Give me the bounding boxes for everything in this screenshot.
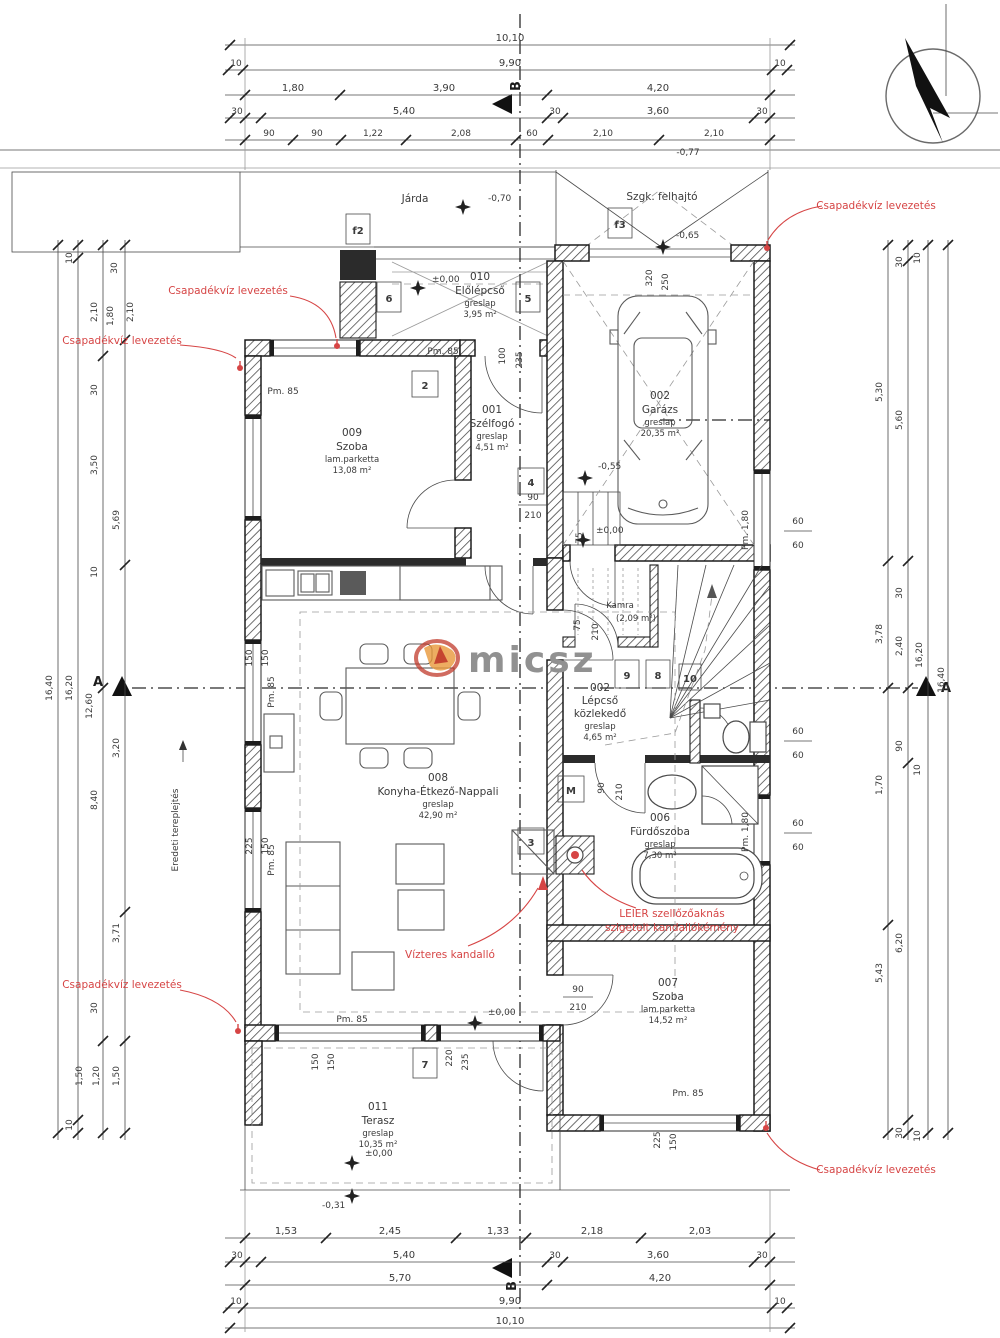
svg-text:320: 320 xyxy=(645,269,655,286)
svg-text:M: M xyxy=(566,786,576,797)
dim: 60 xyxy=(526,129,538,139)
svg-text:150: 150 xyxy=(311,1053,321,1070)
dim: 3,60 xyxy=(647,106,669,117)
floor-plan-page: B B A A xyxy=(0,0,1000,1338)
svg-text:(2,09 m²): (2,09 m²) xyxy=(616,614,656,624)
svg-text:5: 5 xyxy=(525,294,532,305)
svg-text:235: 235 xyxy=(515,351,525,368)
svg-text:2: 2 xyxy=(422,381,429,392)
dim: 30 xyxy=(110,262,120,274)
dim: 1,33 xyxy=(487,1226,509,1237)
dim: 5,69 xyxy=(112,510,122,530)
svg-text:Pm. 85: Pm. 85 xyxy=(267,844,277,875)
svg-text:3,95 m²: 3,95 m² xyxy=(463,310,496,320)
dim: 10 xyxy=(913,1130,923,1142)
svg-text:100: 100 xyxy=(498,347,508,364)
svg-text:4,51 m²: 4,51 m² xyxy=(475,443,508,453)
dim: 30 xyxy=(231,1251,243,1261)
svg-text:60: 60 xyxy=(792,843,804,853)
dim: 12,60 xyxy=(85,693,95,719)
dim: 2,10 xyxy=(126,302,136,322)
window-living-south xyxy=(275,1025,425,1041)
svg-text:Szoba: Szoba xyxy=(336,441,368,453)
note-vizteres: Vízteres kandalló xyxy=(405,949,495,961)
svg-text:Pm. 85: Pm. 85 xyxy=(267,676,277,707)
entry-porch-steps xyxy=(340,247,557,338)
svg-text:Garázs: Garázs xyxy=(642,404,678,416)
svg-text:150: 150 xyxy=(245,649,255,666)
door-dim-007: 90 210 xyxy=(563,985,593,1013)
svg-text:-0,70: -0,70 xyxy=(488,194,512,204)
svg-text:60: 60 xyxy=(792,727,804,737)
garage-steps xyxy=(563,492,620,545)
note-csapadek-top-right: Csapadékvíz levezetés xyxy=(816,200,936,212)
svg-text:±0,00: ±0,00 xyxy=(365,1149,393,1159)
svg-text:Pm. 85: Pm. 85 xyxy=(672,1089,703,1099)
dim: 10 xyxy=(65,1119,75,1131)
svg-text:210: 210 xyxy=(615,783,625,800)
svg-text:Előlépcső: Előlépcső xyxy=(455,285,505,297)
dim: 10 xyxy=(774,1297,786,1307)
svg-text:009: 009 xyxy=(342,427,362,439)
dim: 9,90 xyxy=(499,58,521,69)
dim: 3,20 xyxy=(112,738,122,758)
svg-text:6: 6 xyxy=(386,294,393,305)
svg-text:008: 008 xyxy=(428,772,448,784)
watermark-text: micsz xyxy=(468,640,597,681)
svg-text:Szoba: Szoba xyxy=(652,991,684,1003)
dim: 1,50 xyxy=(75,1066,85,1086)
dim: 8,40 xyxy=(90,790,100,810)
dim: 5,30 xyxy=(875,382,885,402)
dim: 10 xyxy=(230,1297,242,1307)
window-left-3 xyxy=(245,808,261,912)
dim: 5,43 xyxy=(875,963,885,983)
chimney xyxy=(556,836,594,874)
floor-plan-canvas: B B A A xyxy=(0,0,1000,1338)
room-label-011: 011 Terasz greslap 10,35 m² xyxy=(359,1101,398,1150)
dim: 10 xyxy=(913,252,923,264)
dim: 3,78 xyxy=(875,624,885,644)
dim: 1,22 xyxy=(363,129,383,139)
svg-text:42,90 m²: 42,90 m² xyxy=(419,811,458,821)
dim: 30 xyxy=(756,107,768,117)
section-label-a-left: A xyxy=(93,675,103,690)
dim: 1,80 xyxy=(106,306,116,326)
svg-text:Fürdőszoba: Fürdőszoba xyxy=(630,826,690,838)
note-leier-1: LEIER szellőzőaknás xyxy=(619,908,725,920)
svg-text:Pm. 85: Pm. 85 xyxy=(427,347,458,357)
dim: 5,70 xyxy=(389,1273,411,1284)
dim: 1,50 xyxy=(112,1066,122,1086)
svg-text:-0,65: -0,65 xyxy=(676,231,699,241)
svg-text:±0,00: ±0,00 xyxy=(432,275,460,285)
svg-text:Kamra: Kamra xyxy=(606,601,634,611)
dim: 1,70 xyxy=(875,775,885,795)
svg-text:greslap: greslap xyxy=(422,800,453,810)
svg-text:közlekedő: közlekedő xyxy=(574,708,626,720)
room-label-010: 010 Előlépcső greslap 3,95 m² xyxy=(455,271,505,320)
svg-text:8: 8 xyxy=(655,671,662,682)
svg-text:4,65 m²: 4,65 m² xyxy=(583,733,616,743)
svg-text:lam.parketta: lam.parketta xyxy=(325,455,379,465)
dim: 2,10 xyxy=(90,302,100,322)
svg-text:60: 60 xyxy=(792,517,804,527)
section-label-b-top: B xyxy=(509,81,524,91)
dim: 30 xyxy=(549,1251,561,1261)
room-label-007: 007 Szoba lam.parketta 14,52 m² xyxy=(641,977,695,1026)
svg-text:150: 150 xyxy=(261,649,271,666)
dim: 90 xyxy=(311,129,323,139)
door-dim-009: 90 210 xyxy=(518,493,548,521)
svg-text:Pm. 85: Pm. 85 xyxy=(267,387,298,397)
dim: 3,60 xyxy=(647,1250,669,1261)
svg-text:-0,31: -0,31 xyxy=(322,1201,345,1211)
dim: 10 xyxy=(65,252,75,264)
dim: 4,20 xyxy=(647,83,669,94)
svg-text:60: 60 xyxy=(792,751,804,761)
svg-text:13,08 m²: 13,08 m² xyxy=(333,466,372,476)
note-csapadek-left-2: Csapadékvíz levezetés xyxy=(62,335,182,347)
dim: 30 xyxy=(895,587,905,599)
room-label-002-garage: 002 Garázs greslap 20,35 m² xyxy=(641,390,680,439)
svg-text:f3: f3 xyxy=(614,220,625,231)
svg-text:90: 90 xyxy=(597,782,607,794)
note-leier-2: szigetelt kandallókémény xyxy=(605,922,739,934)
dim-chain-right: 30 10 5,30 5,60 30 3,78 2,40 16,20 16,40… xyxy=(784,240,953,1142)
svg-text:greslap: greslap xyxy=(584,722,615,732)
svg-text:90: 90 xyxy=(527,493,539,503)
note-csapadek-bottom-left: Csapadékvíz levezetés xyxy=(62,979,182,991)
wall-pier-dims: 60 60 60 60 60 60 xyxy=(784,517,812,853)
svg-text:7: 7 xyxy=(422,1060,429,1071)
svg-text:220: 220 xyxy=(445,1049,455,1066)
svg-text:greslap: greslap xyxy=(362,1129,393,1139)
dim: 2,18 xyxy=(581,1226,603,1237)
svg-text:greslap: greslap xyxy=(644,840,675,850)
svg-text:±0,00: ±0,00 xyxy=(596,526,624,536)
svg-text:Pm. 1,80: Pm. 1,80 xyxy=(741,812,751,852)
dim: 2,10 xyxy=(704,129,724,139)
note-csapadek-bottom-right: Csapadékvíz levezetés xyxy=(816,1164,936,1176)
room-label-kamra: Kamra (2,09 m²) xyxy=(606,601,656,624)
svg-text:greslap: greslap xyxy=(644,418,675,428)
dim: 16,40 xyxy=(45,675,55,701)
dim: 16,20 xyxy=(65,675,75,701)
dim: 90 xyxy=(895,740,905,752)
watermark: micsz xyxy=(416,640,597,681)
terrace xyxy=(245,1041,560,1190)
level-text: -0,77 xyxy=(676,148,699,158)
dim: 10,10 xyxy=(496,33,525,44)
svg-text:250: 250 xyxy=(661,273,671,290)
watermark-logo-icon xyxy=(416,641,458,675)
dim: 10 xyxy=(913,764,923,776)
svg-text:002: 002 xyxy=(650,390,670,402)
dim: 90 xyxy=(263,129,275,139)
svg-text:14,52 m²: 14,52 m² xyxy=(649,1016,688,1026)
dim: 16,40 xyxy=(937,667,947,693)
svg-text:001: 001 xyxy=(482,404,502,416)
room-label-001: 001 Szélfogó greslap 4,51 m² xyxy=(470,404,515,453)
svg-text:10: 10 xyxy=(683,674,697,685)
room-label-008: 008 Konyha-Étkező-Nappali greslap 42,90 … xyxy=(377,772,498,821)
svg-text:f2: f2 xyxy=(352,226,363,237)
room-label-009: 009 Szoba lam.parketta 13,08 m² xyxy=(325,427,379,476)
dim: 30 xyxy=(549,107,561,117)
svg-text:002: 002 xyxy=(590,682,610,694)
dim: 2,03 xyxy=(689,1226,711,1237)
svg-text:Pm. 85: Pm. 85 xyxy=(336,1015,367,1025)
svg-text:Terasz: Terasz xyxy=(361,1115,395,1127)
svg-text:60: 60 xyxy=(792,541,804,551)
svg-text:Szélfogó: Szélfogó xyxy=(470,418,515,430)
svg-text:150: 150 xyxy=(327,1053,337,1070)
svg-text:010: 010 xyxy=(470,271,490,283)
svg-text:4: 4 xyxy=(528,478,535,489)
svg-text:9: 9 xyxy=(624,671,631,682)
window-009-north xyxy=(270,340,360,356)
dim: 2,08 xyxy=(451,129,471,139)
window-garage-east xyxy=(754,470,770,570)
dim: 30 xyxy=(895,1127,905,1139)
dim: 30 xyxy=(90,384,100,396)
svg-text:210: 210 xyxy=(591,623,601,640)
svg-text:75: 75 xyxy=(573,619,583,630)
window-left-1 xyxy=(245,415,261,520)
svg-text:3: 3 xyxy=(528,838,535,849)
dim: 3,71 xyxy=(112,923,122,943)
driveway xyxy=(556,170,768,247)
svg-text:-0,55: -0,55 xyxy=(598,462,621,472)
dim: 30 xyxy=(895,256,905,268)
dim: 1,53 xyxy=(275,1226,297,1237)
svg-text:011: 011 xyxy=(368,1101,388,1113)
dim: 10,10 xyxy=(496,1316,525,1327)
jarda-label: Járda xyxy=(401,193,429,205)
section-label-b-bottom: B xyxy=(505,1281,520,1291)
dim: 10 xyxy=(774,59,786,69)
svg-text:007: 007 xyxy=(658,977,678,989)
svg-text:150: 150 xyxy=(669,1133,679,1150)
dim: 2,45 xyxy=(379,1226,401,1237)
svg-text:210: 210 xyxy=(524,511,541,521)
dim: 10 xyxy=(230,59,242,69)
window-007-south xyxy=(600,1115,740,1131)
north-arrow-icon xyxy=(886,4,998,143)
dim: 5,40 xyxy=(393,106,415,117)
dim: 3,90 xyxy=(433,83,455,94)
dim: 5,60 xyxy=(895,410,905,430)
room-label-002-stair: 002 Lépcső közlekedő greslap 4,65 m² xyxy=(574,682,626,743)
svg-text:greslap: greslap xyxy=(464,299,495,309)
svg-text:Konyha-Étkező-Nappali: Konyha-Étkező-Nappali xyxy=(377,785,498,798)
svg-text:greslap: greslap xyxy=(476,432,507,442)
dim: 2,10 xyxy=(593,129,613,139)
dim: 5,40 xyxy=(393,1250,415,1261)
dim: 3,50 xyxy=(90,455,100,475)
svg-text:±0,00: ±0,00 xyxy=(488,1008,516,1018)
terrace-door-opening xyxy=(437,1025,543,1041)
svg-text:Lépcső: Lépcső xyxy=(582,695,618,707)
svg-text:90: 90 xyxy=(572,985,584,995)
svg-text:7,30 m²: 7,30 m² xyxy=(643,851,676,861)
dim: 16,20 xyxy=(915,642,925,668)
svg-text:20,35 m²: 20,35 m² xyxy=(641,429,680,439)
note-csapadek-left-1: Csapadékvíz levezetés xyxy=(168,285,288,297)
svg-text:225: 225 xyxy=(245,837,255,854)
dim: 30 xyxy=(90,1002,100,1014)
dim: 4,20 xyxy=(649,1273,671,1284)
svg-text:lam.parketta: lam.parketta xyxy=(641,1005,695,1015)
svg-text:006: 006 xyxy=(650,812,670,824)
dim: 30 xyxy=(756,1251,768,1261)
dim: 10 xyxy=(90,566,100,578)
svg-text:235: 235 xyxy=(461,1053,471,1070)
dim: 1,20 xyxy=(92,1066,102,1086)
svg-text:60: 60 xyxy=(792,819,804,829)
dim: 6,20 xyxy=(895,933,905,953)
svg-text:Pm. 1,80: Pm. 1,80 xyxy=(741,510,751,550)
dim: 2,40 xyxy=(895,636,905,656)
felhajto-label: Szgk. felhajtó xyxy=(626,191,697,203)
svg-text:210: 210 xyxy=(569,1003,586,1013)
dim: 1,80 xyxy=(282,83,304,94)
svg-text:225: 225 xyxy=(653,1131,663,1148)
dim: 30 xyxy=(231,107,243,117)
kitchen-counter xyxy=(262,566,502,600)
dim: 9,90 xyxy=(499,1296,521,1307)
terep-label: Eredeti tereplejtés xyxy=(170,788,181,871)
